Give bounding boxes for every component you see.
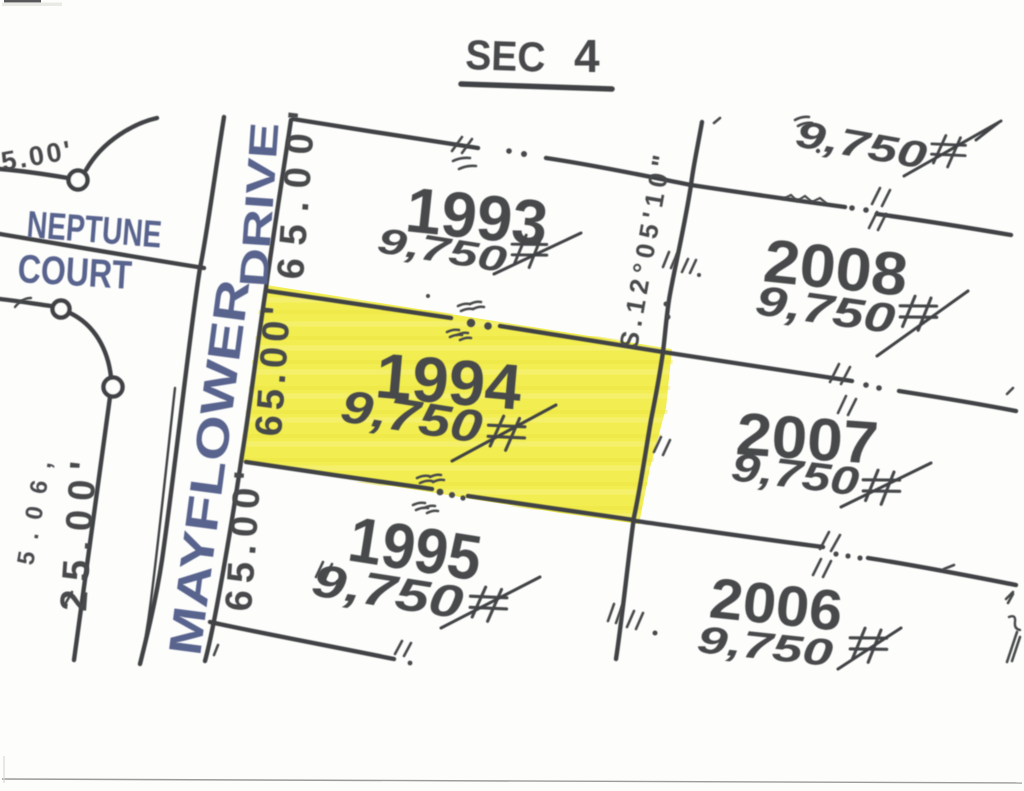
svg-text:4: 4 bbox=[574, 30, 600, 82]
svg-text:SEC: SEC bbox=[465, 31, 547, 81]
svg-text:COURT: COURT bbox=[16, 247, 132, 298]
